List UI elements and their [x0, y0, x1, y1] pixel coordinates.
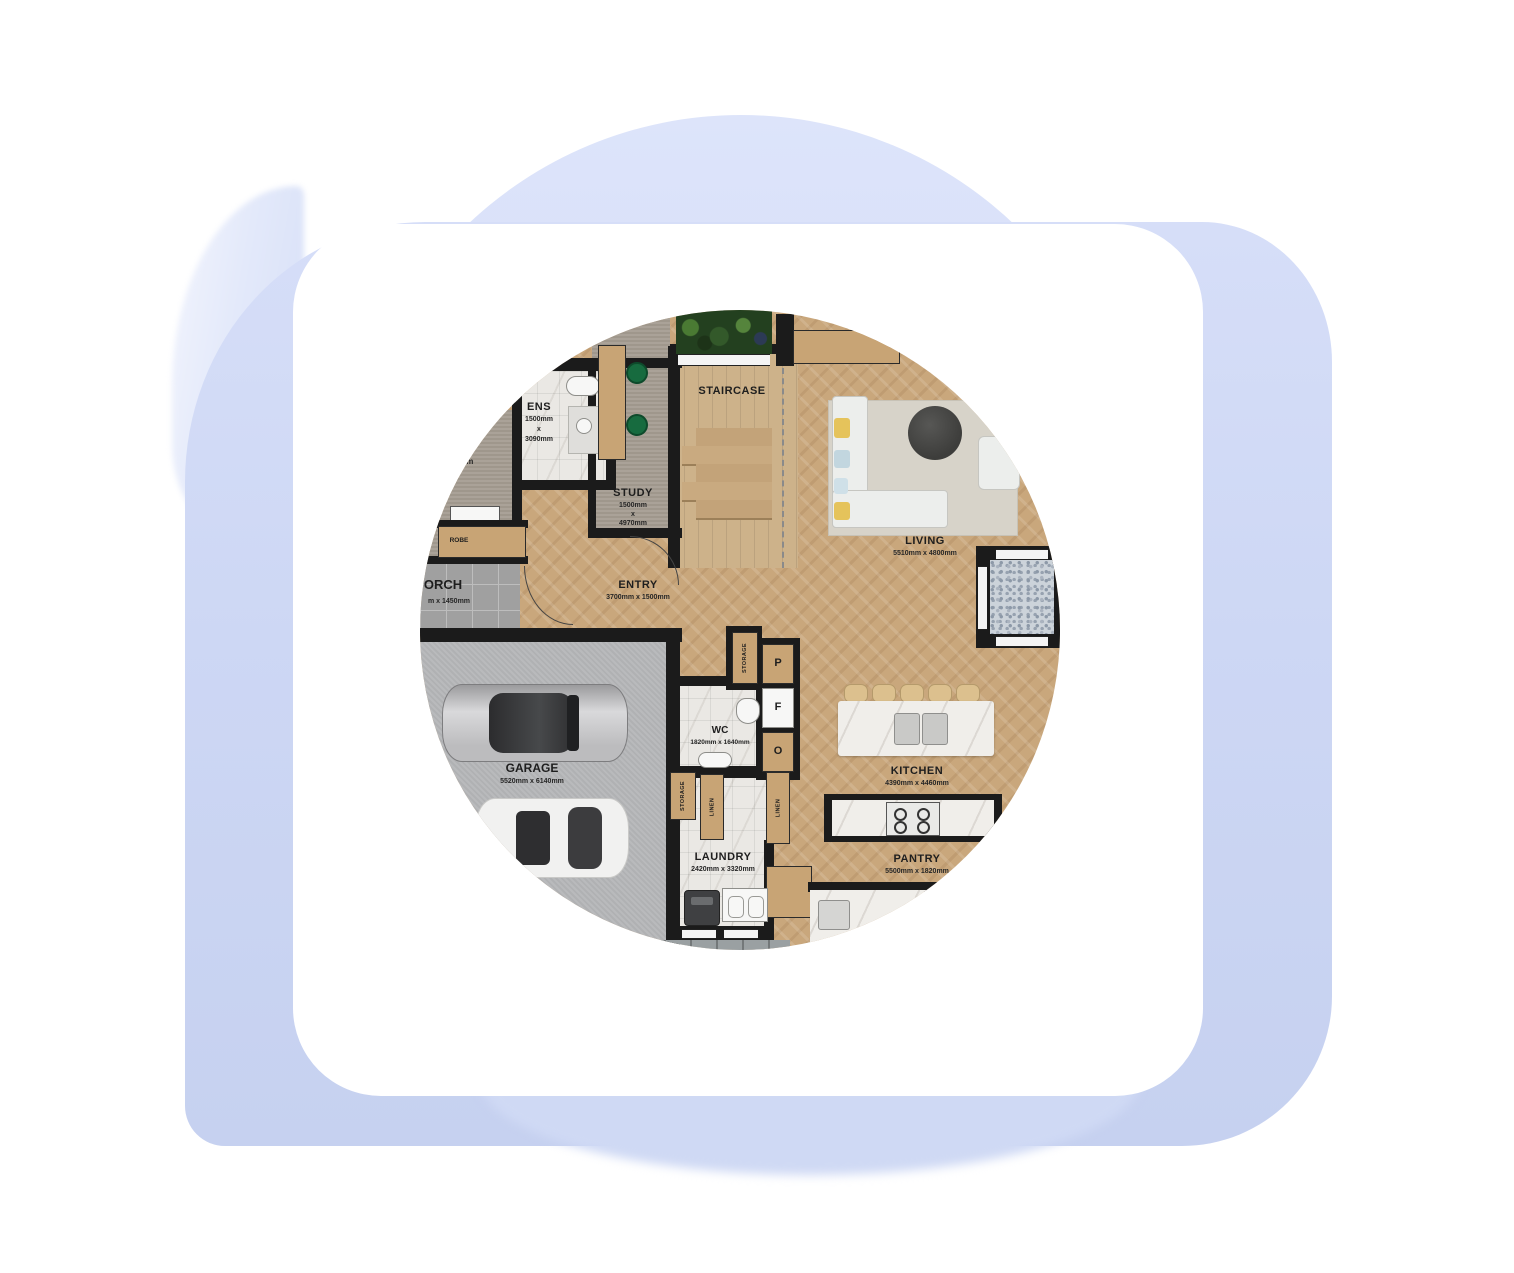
- living-media-unit: [793, 330, 900, 364]
- entry-door-arc: [524, 566, 573, 625]
- study-chair: [626, 362, 648, 384]
- cooktop: [886, 802, 940, 836]
- living-dims: 5510mm x 4800mm: [870, 550, 980, 557]
- wc-toilet: [736, 698, 760, 724]
- garage-label: GARAGE: [482, 762, 582, 774]
- wc-name: WC: [698, 726, 742, 736]
- pantry-cupboard-label: P: [762, 658, 794, 669]
- ens-label: ENS: [516, 402, 562, 413]
- bedroom-partial-dim: 0mm: [444, 458, 484, 466]
- fridge-label: F: [762, 702, 794, 713]
- wall: [512, 358, 682, 368]
- pantry-dims: 5500mm x 1820mm: [862, 868, 972, 875]
- open-void-dashed-line: [782, 368, 784, 568]
- storage-cabinet-lower: STORAGE: [670, 772, 696, 820]
- entry-dims: 3700mm x 1500mm: [582, 594, 694, 601]
- kitchen-label: KITCHEN: [872, 766, 962, 777]
- laundry-label: LAUNDRY: [678, 852, 768, 863]
- laundry-dims: 2420mm x 3320mm: [668, 866, 778, 873]
- pantry-sink: [818, 900, 850, 930]
- wall: [420, 628, 682, 642]
- washing-machine: [684, 890, 720, 926]
- wc-basin: [698, 752, 732, 768]
- ens-basin: [576, 418, 592, 434]
- stairs: [682, 428, 772, 522]
- living-label: LIVING: [880, 536, 970, 547]
- laundry-window: [682, 929, 716, 939]
- garage-dims: 5520mm x 6140mm: [477, 778, 587, 785]
- cushion: [834, 502, 850, 520]
- robe-label: ROBE: [442, 538, 476, 545]
- storage-cabinet-top: STORAGE: [732, 632, 758, 684]
- laundry-window: [724, 929, 758, 939]
- pantry-label: PANTRY: [872, 854, 962, 865]
- wall: [776, 314, 794, 366]
- car-silver: [442, 684, 628, 762]
- cushion: [834, 478, 848, 494]
- laundry-sink-unit: [722, 888, 768, 922]
- study-label: STUDY: [602, 488, 664, 499]
- ens-dim-w: 1500mm: [516, 416, 562, 423]
- wall: [668, 346, 680, 568]
- staircase-label: STAIRCASE: [678, 386, 786, 397]
- cushion: [834, 450, 850, 468]
- wall: [512, 480, 616, 490]
- cushion: [834, 418, 850, 438]
- porch-label: ORCH: [420, 578, 466, 591]
- study-dim-w: 1500mm: [602, 502, 664, 509]
- armchair: [978, 436, 1020, 490]
- porch-dims: m x 1450mm: [420, 598, 478, 605]
- coffee-table: [908, 406, 962, 460]
- ens-bath: [566, 376, 600, 396]
- study-desk: [598, 345, 626, 460]
- planter-greenery: [676, 310, 772, 354]
- staircase-window-sill: [678, 354, 770, 366]
- study-chair: [626, 414, 648, 436]
- linen-cabinet-left: LINEN: [700, 774, 724, 840]
- ens-dim-sep: x: [516, 426, 562, 433]
- paver-path: [560, 940, 790, 950]
- window: [978, 566, 987, 630]
- pantry-wood-bench: [766, 866, 812, 918]
- floorplan-circle: STAIRCASE ENS 1500mm x 3090mm STUDY 1500…: [420, 310, 1060, 950]
- kitchen-dims: 4390mm x 4460mm: [862, 780, 972, 787]
- page: STAIRCASE ENS 1500mm x 3090mm STUDY 1500…: [0, 0, 1514, 1273]
- island-sink: [922, 713, 948, 745]
- island-sink: [894, 713, 920, 745]
- porch-floor: [420, 558, 520, 634]
- linen-cabinet-right: LINEN: [766, 772, 790, 844]
- window: [996, 636, 1048, 647]
- ens-dim-h: 3090mm: [516, 436, 562, 443]
- courtyard-pebbles: [990, 560, 1054, 634]
- wc-dims: 1820mm x 1640mm: [674, 740, 766, 747]
- window: [996, 549, 1048, 560]
- study-dim-sep: x: [602, 511, 664, 518]
- car-white: [475, 798, 629, 878]
- study-dim-h: 4970mm: [602, 520, 664, 527]
- oven-label: O: [762, 746, 794, 757]
